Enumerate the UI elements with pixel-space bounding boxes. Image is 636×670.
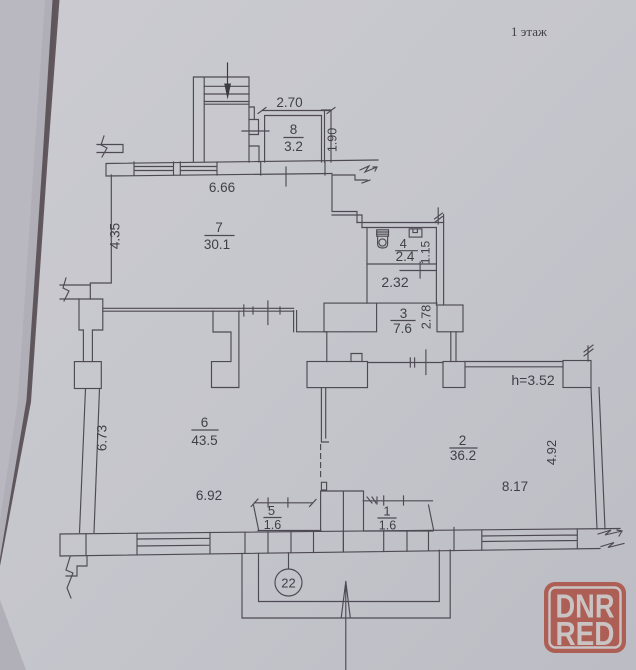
svg-text:2.78: 2.78 bbox=[420, 305, 434, 329]
svg-text:3: 3 bbox=[400, 306, 408, 321]
svg-text:RED: RED bbox=[556, 615, 615, 652]
svg-text:7: 7 bbox=[215, 220, 223, 235]
svg-text:5: 5 bbox=[268, 503, 275, 518]
svg-text:3.2: 3.2 bbox=[284, 139, 303, 154]
svg-text:1 этаж: 1 этаж bbox=[511, 24, 548, 39]
svg-text:2.32: 2.32 bbox=[381, 274, 408, 290]
svg-text:7.6: 7.6 bbox=[393, 321, 412, 336]
svg-text:2.4: 2.4 bbox=[396, 249, 415, 264]
svg-text:8: 8 bbox=[290, 122, 298, 137]
svg-text:1: 1 bbox=[383, 504, 390, 519]
svg-text:1.15: 1.15 bbox=[419, 240, 433, 264]
svg-text:36.2: 36.2 bbox=[450, 448, 476, 463]
svg-text:2: 2 bbox=[459, 433, 467, 448]
svg-text:2.70: 2.70 bbox=[276, 95, 302, 110]
svg-text:1.6: 1.6 bbox=[264, 518, 281, 532]
svg-text:h=3.52: h=3.52 bbox=[511, 372, 554, 388]
svg-text:4.35: 4.35 bbox=[108, 223, 123, 249]
svg-text:8.17: 8.17 bbox=[502, 479, 528, 494]
svg-text:22: 22 bbox=[281, 576, 295, 591]
svg-text:1.90: 1.90 bbox=[326, 128, 340, 152]
svg-text:4.92: 4.92 bbox=[544, 440, 559, 465]
svg-text:6.92: 6.92 bbox=[196, 488, 222, 503]
svg-text:6.66: 6.66 bbox=[209, 180, 235, 195]
svg-text:6.73: 6.73 bbox=[95, 425, 110, 451]
svg-text:43.5: 43.5 bbox=[191, 433, 217, 448]
svg-text:6: 6 bbox=[201, 415, 209, 430]
svg-text:30.1: 30.1 bbox=[204, 237, 230, 252]
